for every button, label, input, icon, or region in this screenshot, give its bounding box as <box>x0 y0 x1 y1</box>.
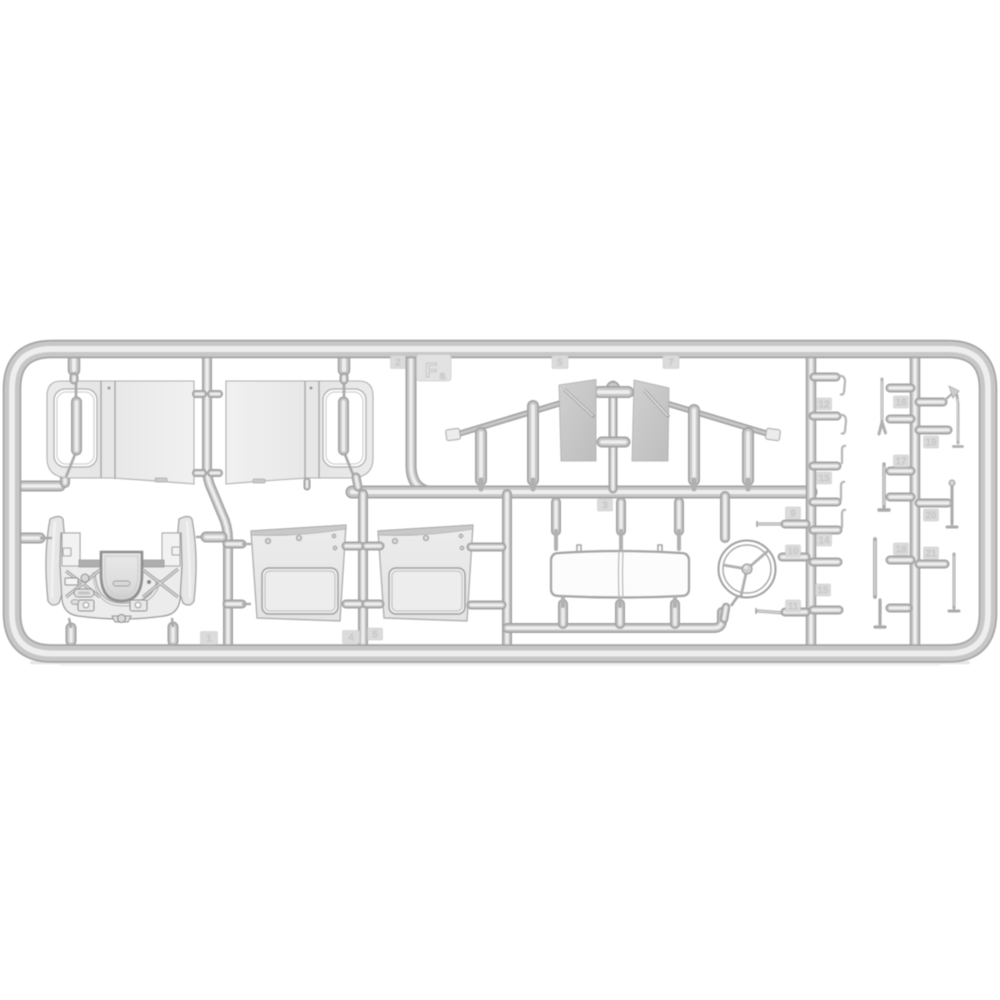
svg-text:2: 2 <box>395 358 401 369</box>
svg-text:5: 5 <box>557 358 563 369</box>
svg-text:F: F <box>425 360 437 382</box>
svg-text:11: 11 <box>788 602 799 613</box>
svg-text:13: 13 <box>818 474 830 485</box>
svg-text:20: 20 <box>925 511 937 522</box>
svg-text:9: 9 <box>790 509 796 520</box>
svg-text:4: 4 <box>348 633 354 644</box>
svg-text:a: a <box>439 370 446 382</box>
svg-text:21: 21 <box>925 549 937 560</box>
svg-text:15: 15 <box>817 586 829 597</box>
svg-text:7: 7 <box>668 358 674 369</box>
svg-text:19: 19 <box>925 438 937 449</box>
svg-text:16: 16 <box>895 398 907 409</box>
svg-text:12: 12 <box>818 400 830 411</box>
svg-text:14: 14 <box>818 536 830 547</box>
svg-text:10: 10 <box>787 547 799 558</box>
svg-text:1: 1 <box>206 634 212 645</box>
svg-text:17: 17 <box>895 457 907 468</box>
svg-text:3: 3 <box>602 501 608 512</box>
svg-text:5: 5 <box>372 630 378 641</box>
svg-text:18: 18 <box>895 545 907 556</box>
